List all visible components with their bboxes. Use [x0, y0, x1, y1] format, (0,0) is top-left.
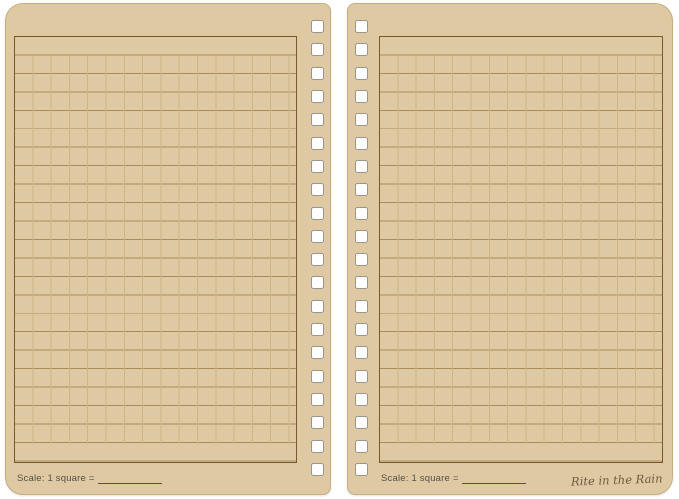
punch-hole [311, 300, 324, 313]
punch-hole [355, 276, 368, 289]
punch-hole [311, 90, 324, 103]
punch-hole [355, 253, 368, 266]
punch-hole [355, 90, 368, 103]
punch-hole-column-right [355, 20, 368, 476]
punch-hole [355, 67, 368, 80]
scale-fill-in-line [462, 475, 526, 484]
punch-hole [311, 416, 324, 429]
punch-hole [355, 346, 368, 359]
punch-hole [311, 370, 324, 383]
punch-hole [311, 463, 324, 476]
scale-label: Scale: 1 square = [381, 473, 459, 484]
punch-hole [355, 183, 368, 196]
punch-hole [355, 230, 368, 243]
punch-hole [311, 207, 324, 220]
scale-label: Scale: 1 square = [17, 473, 95, 484]
punch-hole [311, 183, 324, 196]
brand-logo-script: Rite in the Rain [571, 471, 663, 488]
punch-hole-column-left [311, 20, 324, 476]
punch-hole [311, 440, 324, 453]
punch-hole [355, 440, 368, 453]
notebook-page-right: Scale: 1 square = Rite in the Rain [347, 3, 673, 495]
punch-hole [311, 346, 324, 359]
ruled-grid [379, 36, 663, 463]
punch-hole [355, 393, 368, 406]
punch-hole [311, 253, 324, 266]
punch-hole [355, 323, 368, 336]
punch-hole [311, 393, 324, 406]
punch-hole [355, 207, 368, 220]
punch-hole [311, 113, 324, 126]
notebook-page-left: Scale: 1 square = [5, 3, 331, 495]
scale-fill-in-line [98, 475, 162, 484]
punch-hole [355, 137, 368, 150]
punch-hole [311, 67, 324, 80]
punch-hole [355, 20, 368, 33]
ruled-grid [14, 36, 297, 463]
scale-row: Scale: 1 square = [17, 473, 162, 484]
punch-hole [355, 160, 368, 173]
scale-row: Scale: 1 square = [381, 473, 526, 484]
grid-vertical-lines [15, 55, 296, 444]
punch-hole [311, 230, 324, 243]
punch-hole [355, 370, 368, 383]
punch-hole [355, 300, 368, 313]
punch-hole [311, 160, 324, 173]
punch-hole [355, 113, 368, 126]
punch-hole [311, 43, 324, 56]
punch-hole [355, 43, 368, 56]
punch-hole [311, 137, 324, 150]
punch-hole [311, 20, 324, 33]
punch-hole [355, 416, 368, 429]
punch-hole [311, 323, 324, 336]
punch-hole [355, 463, 368, 476]
punch-hole [311, 276, 324, 289]
notebook-spread: Scale: 1 square = Scale: 1 square = Rite… [0, 0, 679, 499]
grid-vertical-lines [380, 55, 662, 444]
